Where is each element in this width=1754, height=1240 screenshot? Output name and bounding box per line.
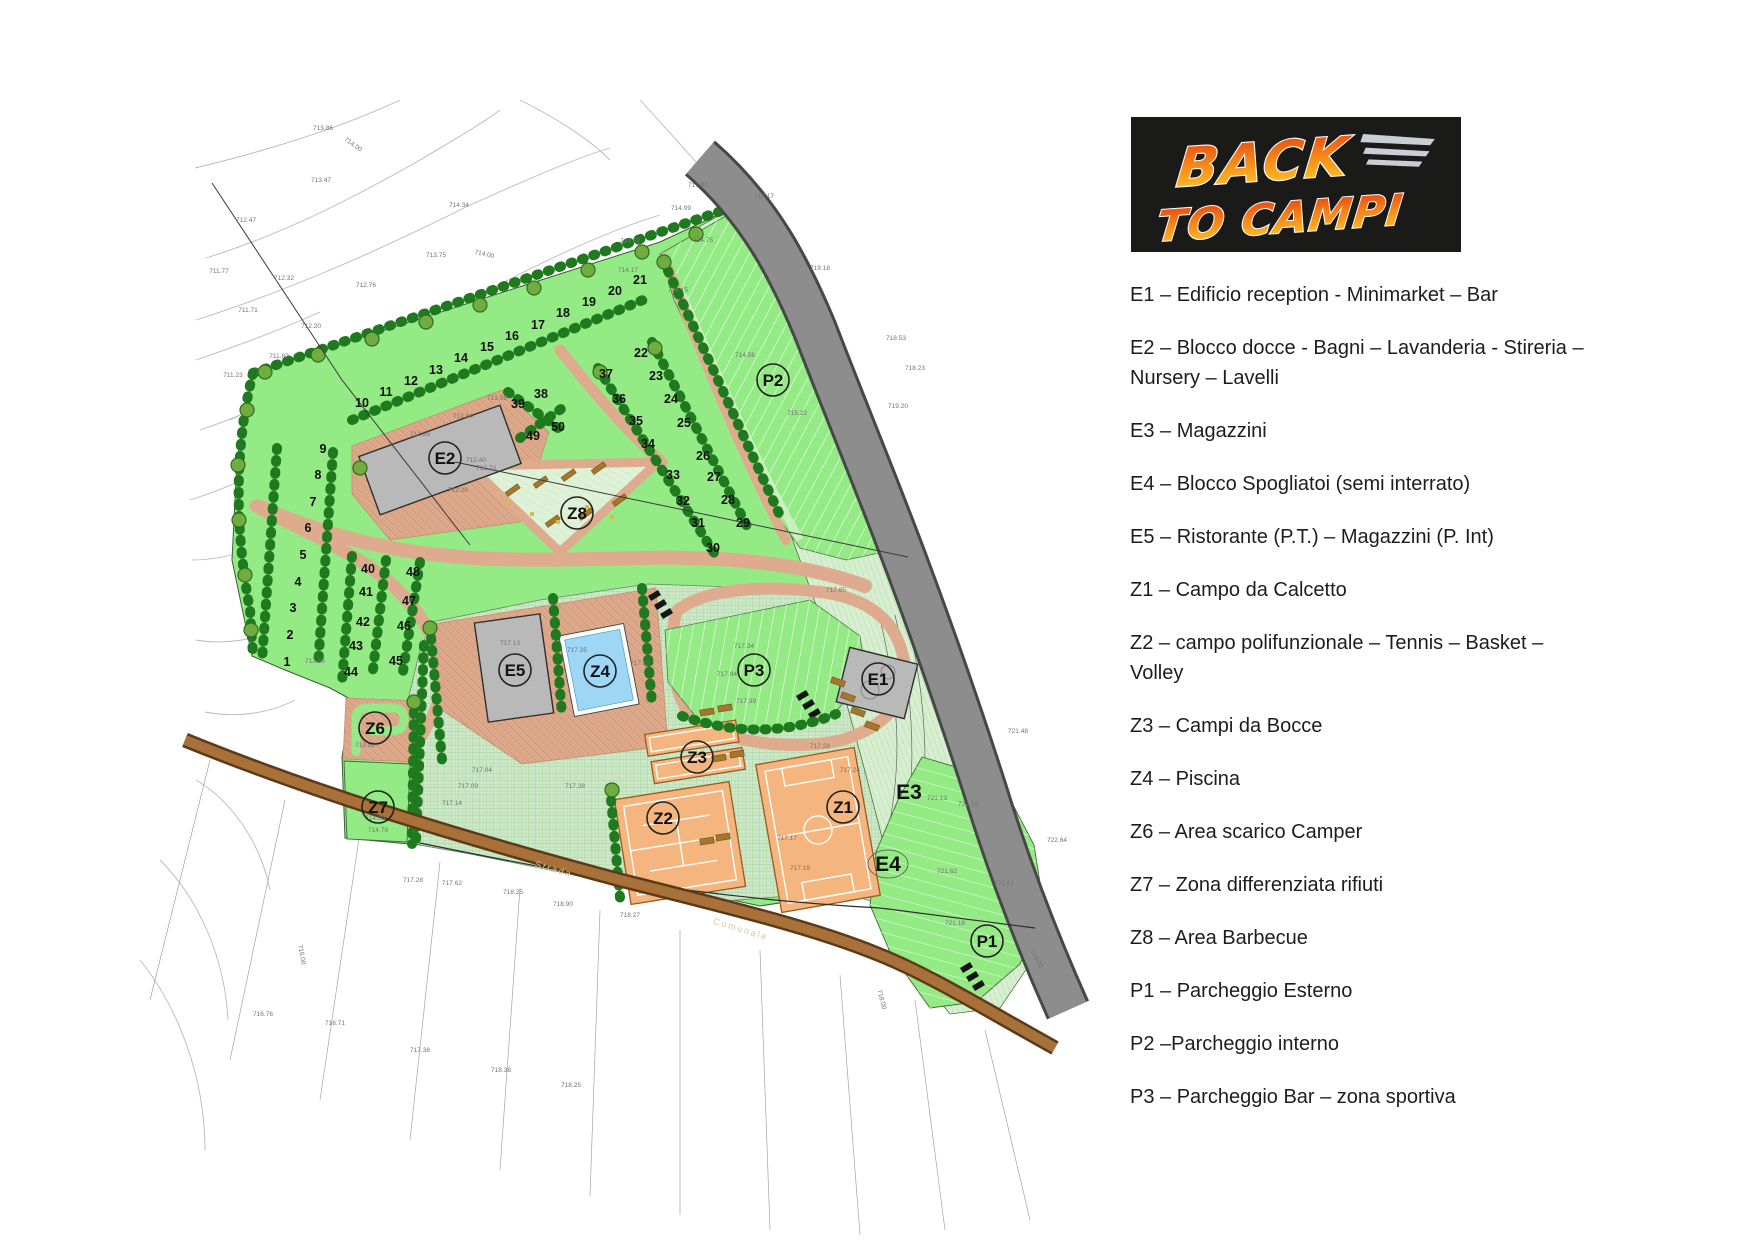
legend-item-z2: Z2 – campo polifunzionale – Tennis – Bas… (1130, 628, 1600, 688)
elevation-label: 717.17 (777, 835, 797, 842)
elevation-label: 712.47 (236, 217, 256, 224)
elevation-label: 714.15 (668, 287, 688, 294)
elevation-label: 718.27 (620, 912, 640, 919)
pitch-number: 48 (406, 565, 420, 579)
elevation-label: 718.25 (503, 889, 523, 896)
site-plan-page: 1234567891011121314151617181920212223242… (0, 0, 1754, 1240)
pitch-number: 2 (287, 628, 294, 642)
elevation-label: 718.00 (875, 989, 887, 1010)
pitch-number: 17 (531, 318, 545, 332)
pitch-number: 11 (379, 385, 392, 399)
elevation-label: 717.13 (500, 640, 520, 647)
elevation-label: 717.38 (410, 1047, 430, 1054)
pitch-number: 8 (315, 468, 322, 482)
svg-text:E4: E4 (875, 853, 901, 876)
pitch-number: 23 (649, 369, 663, 383)
elevation-label: 714.34 (449, 202, 469, 209)
pitch-number: 38 (534, 387, 548, 401)
elevation-label: 717.02 (688, 182, 708, 189)
pitch-number: 3 (290, 601, 297, 615)
pitch-number: 22 (634, 346, 648, 360)
pitch-number: 43 (349, 639, 363, 653)
elevation-label: 717.28 (403, 877, 423, 884)
elevation-label: 721.48 (1008, 728, 1028, 735)
elevation-label: 717.62 (442, 880, 462, 887)
legend-item-p2: P2 –Parcheggio interno (1130, 1029, 1600, 1059)
svg-text:Z6: Z6 (365, 719, 385, 738)
logo-speed-lines-icon (1357, 129, 1436, 171)
elevation-label: 712.26 (410, 431, 430, 438)
legend-item-p3: P3 – Parcheggio Bar – zona sportiva (1130, 1082, 1600, 1112)
legend-item-z8: Z8 – Area Barbecue (1130, 923, 1600, 953)
legend-item-e4: E4 – Blocco Spogliatoi (semi interrato) (1130, 469, 1600, 499)
pitch-number: 27 (707, 470, 721, 484)
elevation-label: 714.00 (343, 136, 364, 153)
pitch-number: 10 (355, 396, 369, 410)
pitch-number: 4 (295, 575, 302, 589)
pitch-number: 14 (454, 351, 468, 365)
elevation-label: 712.32 (274, 275, 294, 282)
svg-text:Z1: Z1 (833, 798, 853, 817)
svg-text:E5: E5 (505, 661, 526, 680)
pitch-number: 6 (305, 521, 312, 535)
site-plan-map: 1234567891011121314151617181920212223242… (0, 0, 1100, 1240)
elevation-label: 717.09 (458, 783, 478, 790)
pitch-number: 28 (721, 493, 735, 507)
elevation-label: 717.33 (630, 660, 650, 667)
elevation-label: 718.90 (553, 901, 573, 908)
elevation-label: 716.71 (325, 1020, 345, 1027)
svg-text:P1: P1 (977, 932, 998, 951)
elevation-label: 718.23 (905, 365, 925, 372)
pitch-number: 19 (582, 295, 596, 309)
pitch-number: 49 (526, 429, 540, 443)
pitch-number: 30 (706, 541, 720, 555)
pitch-number: 34 (641, 437, 655, 451)
legend-item-z7: Z7 – Zona differenziata rifiuti (1130, 870, 1600, 900)
elevation-label: 712.40 (466, 457, 486, 464)
elevation-label: 712.84 (453, 413, 473, 420)
elevation-label: 711.71 (238, 307, 258, 314)
elevation-label: 717.24 (840, 767, 860, 774)
elevation-label: 717.19 (790, 865, 810, 872)
pitch-number: 15 (480, 340, 494, 354)
elevation-label: 714.56 (735, 352, 755, 359)
pitch-number: 9 (320, 442, 327, 456)
legend-item-e1: E1 – Edificio reception - Minimarket – B… (1130, 280, 1600, 310)
elevation-label: 717.35 (567, 647, 587, 654)
pitch-number: 21 (633, 273, 647, 287)
elevation-label: 712.76 (356, 282, 376, 289)
pitch-number: 42 (356, 615, 370, 629)
elevation-label: 718.25 (561, 1082, 581, 1089)
legend-item-e2: E2 – Blocco docce - Bagni – Lavanderia -… (1130, 333, 1600, 393)
svg-text:Z4: Z4 (590, 662, 610, 681)
elevation-label: 717.39 (736, 698, 756, 705)
elevation-label: 712.20 (301, 323, 321, 330)
elevation-label: 714.79 (368, 827, 388, 834)
pitch-number: 44 (344, 665, 358, 679)
pitch-number: 31 (691, 516, 705, 530)
svg-text:P3: P3 (744, 661, 765, 680)
svg-text:E2: E2 (435, 449, 456, 468)
pitch-number: 47 (402, 594, 416, 608)
pitch-number: 40 (361, 562, 375, 576)
pitch-number: 12 (404, 374, 418, 388)
elevation-label: 717.28 (810, 743, 830, 750)
pitch-number: 45 (389, 654, 403, 668)
elevation-label: 717.14 (442, 800, 462, 807)
elevation-label: 716.00 (296, 944, 306, 965)
svg-text:Z3: Z3 (687, 748, 707, 767)
legend: E1 – Edificio reception - Minimarket – B… (1130, 280, 1600, 1135)
pitch-number: 39 (511, 397, 525, 411)
pitch-number: 5 (300, 548, 307, 562)
elevation-label: 717.94 (717, 671, 737, 678)
elevation-label: 711.82 (269, 353, 289, 360)
elevation-label: 713.47 (311, 177, 331, 184)
pitch-number: 1 (284, 655, 291, 669)
elevation-label: 721.13 (927, 795, 947, 802)
elevation-label: 722.18 (958, 801, 978, 808)
elevation-label: 713.58 (487, 395, 507, 402)
area-label-e3: E3 (896, 781, 922, 804)
pitch-number: 46 (397, 619, 411, 633)
legend-item-p1: P1 – Parcheggio Esterno (1130, 976, 1600, 1006)
elevation-label: 713.75 (426, 252, 446, 259)
pitch-number: 18 (556, 306, 570, 320)
elevation-label: 713.86 (313, 125, 333, 132)
elevation-label: 715.22 (787, 410, 807, 417)
elevation-label: 711.77 (209, 268, 229, 275)
svg-text:E3: E3 (896, 781, 922, 804)
pitch-number: 25 (677, 416, 691, 430)
pitch-number: 50 (551, 420, 565, 434)
legend-item-e5: E5 – Ristorante (P.T.) – Magazzini (P. I… (1130, 522, 1600, 552)
elevation-label: 718.38 (491, 1067, 511, 1074)
elevation-label: 714.00 (474, 249, 495, 260)
elevation-label: 717.04 (472, 767, 492, 774)
pitch-number: 37 (599, 367, 613, 381)
elevation-label: 719.18 (810, 265, 830, 272)
pitch-number: 29 (736, 516, 750, 530)
svg-text:Z8: Z8 (567, 504, 587, 523)
pitch-number: 7 (310, 495, 317, 509)
pitch-number: 41 (359, 585, 373, 599)
legend-item-e3: E3 – Magazzini (1130, 416, 1600, 446)
legend-item-z4: Z4 – Piscina (1130, 764, 1600, 794)
elevation-label: 721.62 (937, 868, 957, 875)
logo-word-back: BACK (1174, 124, 1355, 199)
elevation-label: 721.81 (994, 880, 1014, 887)
svg-text:E1: E1 (868, 670, 889, 689)
elevation-label: 714.75 (693, 237, 713, 244)
elevation-label: 712.26 (448, 487, 468, 494)
elevation-label: 716.76 (253, 1011, 273, 1018)
svg-text:Z2: Z2 (653, 809, 673, 828)
elevation-label: 718.53 (886, 335, 906, 342)
pitch-number: 35 (629, 414, 643, 428)
elevation-label: 721.18 (945, 920, 965, 927)
pitch-number: 26 (696, 449, 710, 463)
legend-item-z1: Z1 – Campo da Calcetto (1130, 575, 1600, 605)
elevation-label: 717.34 (734, 643, 754, 650)
pitch-number: 24 (664, 392, 678, 406)
svg-text:Z7: Z7 (368, 798, 388, 817)
pitch-number: 13 (429, 363, 443, 377)
elevation-label: 717.65 (826, 587, 846, 594)
pitch-number: 20 (608, 284, 622, 298)
logo-art: BACK TO CAMPI (1131, 117, 1461, 252)
elevation-label: 714.99 (671, 205, 691, 212)
pitch-number: 32 (676, 494, 690, 508)
legend-item-z6: Z6 – Area scarico Camper (1130, 817, 1600, 847)
pitch-number: 33 (666, 468, 680, 482)
elevation-label: 717.28 (565, 783, 585, 790)
pitch-number: 36 (612, 392, 626, 406)
pitch-number: 16 (505, 329, 519, 343)
back-to-campi-logo: BACK TO CAMPI (1131, 117, 1461, 252)
elevation-label: 722.64 (1047, 837, 1067, 844)
elevation-label: 719.20 (888, 403, 908, 410)
elevation-label: 714.58 (620, 238, 640, 245)
elevation-label: 714.17 (618, 267, 638, 274)
elevation-label: 712.73 (476, 465, 496, 472)
legend-item-z3: Z3 – Campi da Bocce (1130, 711, 1600, 741)
svg-text:P2: P2 (763, 371, 784, 390)
elevation-label: 718.17 (754, 193, 774, 200)
elevation-label: 712.85 (305, 658, 325, 665)
elevation-label: 711.23 (223, 372, 243, 379)
